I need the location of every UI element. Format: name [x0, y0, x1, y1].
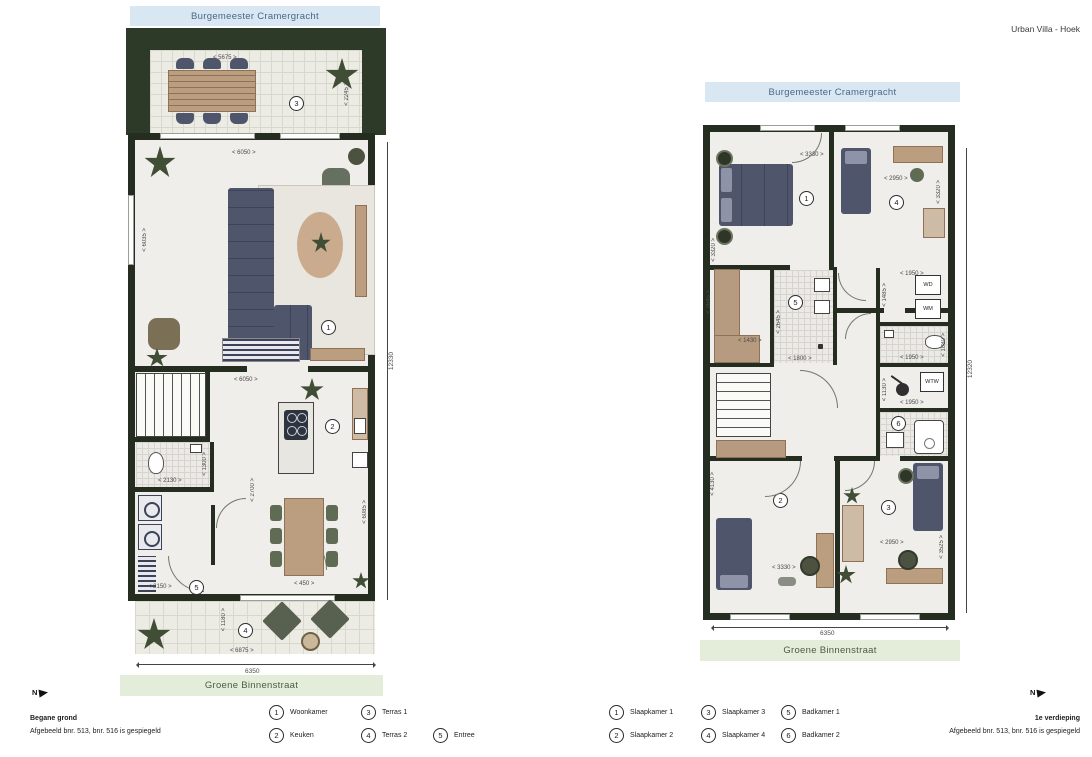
dim-wc-height: < 1300 >: [202, 452, 208, 476]
outdoor-dining-table: [168, 70, 256, 112]
dim-wc-width: < 1950 >: [900, 355, 924, 361]
floor-label-first: 1e verdieping: [880, 715, 1080, 722]
chair: [326, 551, 338, 567]
burner-icon: [287, 426, 297, 436]
dining-table: [284, 498, 324, 576]
dim-bed3-height: < 3525 >: [939, 535, 945, 559]
staircase: [136, 373, 206, 437]
pillow: [917, 466, 939, 479]
cabinet: [310, 348, 365, 361]
dim-wtw-width: < 1950 >: [900, 400, 924, 406]
desk: [893, 146, 943, 163]
legend-label: Slaapkamer 3: [722, 709, 765, 716]
dim-wc-height: < 1080 >: [941, 333, 947, 357]
room-badge-slaapkamer-3: 3: [881, 500, 896, 515]
dim-wdwm-width: < 1950 >: [900, 271, 924, 277]
legend-item: 3 Slaapkamer 3: [701, 705, 765, 720]
mirror-note-ground: Afgebeeld bnr. 513, bnr. 516 is gespiege…: [30, 728, 161, 735]
legend-badge: 1: [609, 705, 624, 720]
legend-badge: 2: [269, 728, 284, 743]
wall: [835, 461, 840, 613]
window: [845, 125, 900, 131]
wall: [710, 363, 774, 367]
room-badge-badkamer-2: 6: [891, 416, 906, 431]
room-badge-terras-2: 4: [238, 623, 253, 638]
dim-kitchen-width: < 6050 >: [234, 377, 258, 383]
legend-label: Slaapkamer 2: [630, 732, 673, 739]
dim-hall-height: < 2700 >: [250, 478, 256, 502]
wardrobe: [842, 505, 864, 562]
washer-icon: [138, 495, 162, 521]
chair: [230, 113, 248, 124]
legend-label: Terras 1: [382, 709, 407, 716]
vacuum-cleaner-icon: [896, 383, 909, 396]
window: [280, 133, 340, 139]
dim-wc-width: < 2130 >: [158, 478, 182, 484]
street-banner-top-right: Burgemeester Cramergracht: [705, 82, 960, 102]
wardrobe: [923, 208, 945, 238]
toilet-icon: [148, 452, 164, 474]
legend-label: Entree: [454, 732, 475, 739]
burner-icon: [287, 413, 297, 423]
wall: [308, 366, 368, 372]
wtw-unit-box: WTW: [920, 372, 944, 392]
legend-item: 1 Woonkamer: [269, 705, 328, 720]
dim-total-height-ground: 12330: [389, 352, 396, 370]
room-badge-badkamer-1: 5: [788, 295, 803, 310]
chair: [270, 505, 282, 521]
floorplan-sheet: Urban Villa - Hoek Burgemeester Cramergr…: [0, 0, 1092, 757]
bedside-lamp-icon: [716, 228, 733, 245]
landing-closet: [716, 440, 786, 458]
washbasin-icon: [886, 432, 904, 448]
legend-badge: 5: [433, 728, 448, 743]
dim-terrace-bottom-width: < 6875 >: [230, 648, 254, 654]
dim-bed4-height: < 3320 >: [936, 180, 942, 204]
window: [160, 133, 255, 139]
legend-item: 2 Keuken: [269, 728, 314, 743]
sideboard: [355, 205, 367, 297]
legend-badge: 6: [781, 728, 796, 743]
dim-line: [137, 664, 375, 665]
desk-chair: [910, 168, 924, 182]
wall: [135, 487, 210, 492]
pillow: [845, 151, 867, 164]
legend-item: 4 Slaapkamer 4: [701, 728, 765, 743]
bedside-lamp-icon: [716, 150, 733, 167]
wall: [210, 442, 214, 492]
room-badge-slaapkamer-1: 1: [799, 191, 814, 206]
legend-badge: 4: [361, 728, 376, 743]
dim-terrace-top-depth: < 2245 >: [344, 82, 350, 106]
mirror-note-first: Afgebeeld bnr. 513, bnr. 516 is gespiege…: [880, 728, 1080, 735]
legend-badge: 2: [609, 728, 624, 743]
north-label: N: [1030, 688, 1035, 697]
legend-label: Slaapkamer 1: [630, 709, 673, 716]
sofa: [228, 188, 274, 360]
dryer-box: WD: [915, 275, 941, 295]
desk-chair: [898, 550, 918, 570]
room-badge-keuken: 2: [325, 419, 340, 434]
legend-item: 4 Terras 2: [361, 728, 407, 743]
legend-label: Terras 2: [382, 732, 407, 739]
legend-item: 5 Entree: [433, 728, 475, 743]
north-indicator-left: N: [32, 688, 48, 697]
legend-label: Badkamer 1: [802, 709, 840, 716]
legend-item: 6 Badkamer 2: [781, 728, 840, 743]
room-badge-entree: 5: [189, 580, 204, 595]
toy-car-icon: [778, 577, 796, 586]
washbasin-icon: [814, 278, 830, 292]
wall-lamp-icon: [898, 468, 914, 484]
pillow: [721, 198, 732, 222]
chair: [270, 551, 282, 567]
legend-label: Keuken: [290, 732, 314, 739]
legend-item: 3 Terras 1: [361, 705, 407, 720]
desk-chair: [800, 556, 820, 576]
dim-bed2-width: < 3330 >: [772, 565, 796, 571]
room-badge-terras-1: 3: [289, 96, 304, 111]
tub-drain-icon: [924, 438, 935, 449]
north-label: N: [32, 688, 37, 697]
legend-badge: 3: [701, 705, 716, 720]
armchair: [148, 318, 180, 350]
page-title: Urban Villa - Hoek: [930, 24, 1080, 34]
wall: [135, 366, 247, 372]
north-indicator-right: N: [1030, 688, 1046, 697]
dim-living-height: < 6035 >: [142, 228, 148, 252]
legend-badge: 1: [269, 705, 284, 720]
dim-bed4-width: < 2950 >: [884, 176, 908, 182]
legend-item: 5 Badkamer 1: [781, 705, 840, 720]
dim-line: [387, 142, 388, 600]
fridge-icon: [354, 418, 366, 434]
legend-label: Woonkamer: [290, 709, 328, 716]
legend-item: 2 Slaapkamer 2: [609, 728, 673, 743]
window: [760, 125, 815, 131]
dim-line: [966, 148, 967, 613]
legend-item: 1 Slaapkamer 1: [609, 705, 673, 720]
tv-bench: [222, 338, 300, 362]
floor-lamp-icon: [348, 148, 365, 165]
dim-bed1-height: < 3320 >: [711, 238, 717, 262]
dim-line: [712, 627, 948, 628]
street-banner-top-left: Burgemeester Cramergracht: [130, 6, 380, 26]
washbasin-icon: [814, 300, 830, 314]
chair: [270, 528, 282, 544]
dim-terrace-bottom-depth: < 1180 >: [221, 608, 227, 631]
room-badge-slaapkamer-4: 4: [889, 195, 904, 210]
wall: [900, 456, 948, 461]
staircase: [716, 373, 771, 437]
sink-icon: [352, 452, 368, 468]
wall: [833, 267, 837, 365]
wall: [211, 505, 215, 565]
dim-bed2-height: < 4130 >: [710, 472, 716, 496]
legend-badge: 3: [361, 705, 376, 720]
dim-living-width: < 6050 >: [232, 150, 256, 156]
dim-closet-height: < 2645 >: [706, 290, 712, 314]
dim-kitchen-height: < 6085 >: [362, 500, 368, 524]
room-badge-woonkamer: 1: [321, 320, 336, 335]
dim-wdwm-height: < 1485 >: [882, 283, 888, 307]
north-arrow-icon: [1037, 688, 1047, 697]
pillow: [720, 575, 748, 588]
street-banner-bottom-left: Groene Binnenstraat: [120, 675, 383, 696]
legend-badge: 5: [781, 705, 796, 720]
dim-total-width-first: 6350: [820, 631, 834, 638]
dim-terrace-top-width: < 5675 >: [213, 55, 237, 61]
chair: [176, 113, 194, 124]
street-banner-bottom-right: Groene Binnenstraat: [700, 640, 960, 661]
dim-bath1-width: < 1800 >: [788, 356, 812, 362]
chair: [176, 58, 194, 69]
window: [730, 614, 790, 620]
window: [860, 614, 920, 620]
outdoor-table: [301, 632, 320, 651]
burner-icon: [297, 426, 307, 436]
north-arrow-icon: [39, 688, 49, 697]
chair: [326, 528, 338, 544]
chair: [326, 505, 338, 521]
shower-drain-icon: [818, 344, 823, 349]
washer-box: WM: [915, 299, 941, 319]
floor-label-ground: Begane grond: [30, 715, 77, 722]
dim-wtw-height: < 1130 >: [882, 378, 888, 401]
wall: [829, 132, 834, 272]
dim-bed3-width: < 2950 >: [880, 540, 904, 546]
dim-closet-width: < 1430 >: [738, 338, 762, 344]
window: [128, 195, 134, 265]
washbasin-icon: [190, 444, 202, 453]
dryer-icon: [138, 524, 162, 550]
chair: [203, 113, 221, 124]
dim-bath1-height: < 2645 >: [776, 310, 782, 334]
desk: [886, 568, 943, 584]
dim-table-offset: < 450 >: [294, 581, 314, 587]
burner-icon: [297, 413, 307, 423]
legend-badge: 4: [701, 728, 716, 743]
dim-total-height-first: 12320: [968, 360, 975, 378]
pillow: [721, 168, 732, 192]
legend-label: Slaapkamer 4: [722, 732, 765, 739]
wall: [880, 363, 948, 367]
legend-label: Badkamer 2: [802, 732, 840, 739]
washbasin-icon: [884, 330, 894, 338]
dim-entry-width: < 2150 >: [148, 584, 172, 590]
